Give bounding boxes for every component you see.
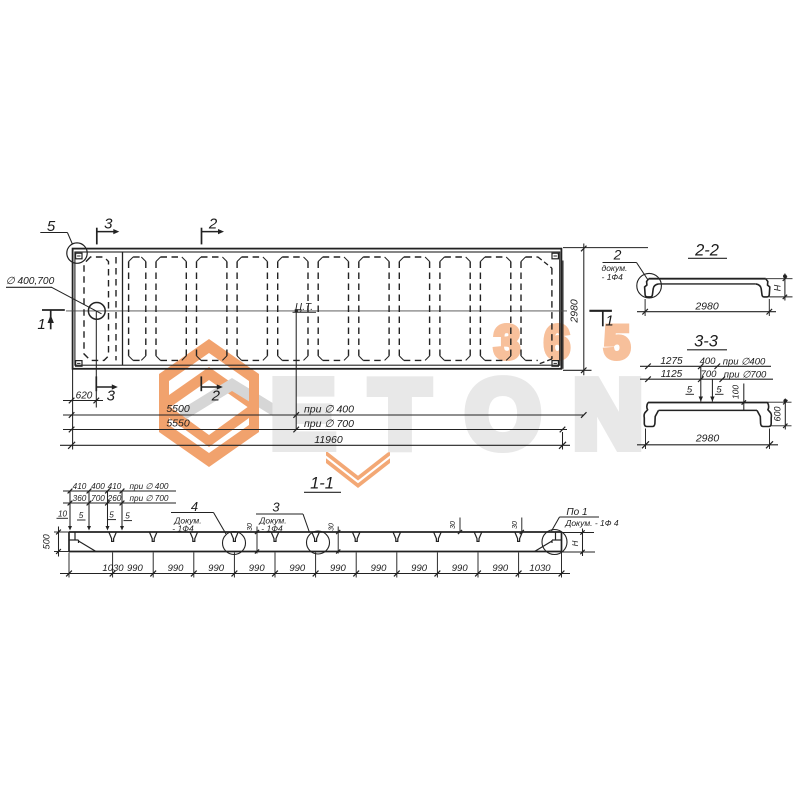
svg-text:30: 30 [328, 523, 335, 531]
svg-text:2: 2 [211, 388, 221, 405]
svg-text:1030: 1030 [102, 563, 124, 574]
svg-text:410: 410 [73, 482, 87, 491]
svg-text:5: 5 [79, 511, 84, 520]
svg-text:990: 990 [371, 563, 388, 574]
svg-text:2: 2 [613, 246, 622, 262]
svg-text:2980: 2980 [694, 300, 719, 312]
svg-text:1275: 1275 [660, 356, 683, 367]
svg-text:5: 5 [125, 512, 130, 521]
svg-text:- 1Ф4: - 1Ф4 [172, 523, 194, 533]
svg-text:2980: 2980 [569, 299, 581, 324]
svg-text:990: 990 [289, 563, 306, 574]
svg-text:30: 30 [512, 521, 519, 529]
svg-text:990: 990 [208, 563, 225, 574]
svg-text:5: 5 [687, 384, 693, 395]
svg-text:По 1: По 1 [566, 507, 587, 518]
svg-text:990: 990 [168, 563, 185, 574]
svg-text:3: 3 [104, 216, 113, 233]
svg-text:360: 360 [73, 494, 87, 503]
svg-text:5500: 5500 [166, 403, 190, 415]
svg-text:30: 30 [450, 521, 457, 529]
svg-text:4: 4 [191, 499, 198, 514]
svg-text:при ∅ 400: при ∅ 400 [130, 482, 169, 491]
svg-text:410: 410 [108, 482, 122, 491]
svg-text:∅ 400,700: ∅ 400,700 [6, 276, 55, 287]
svg-text:990: 990 [452, 563, 469, 574]
svg-text:при ∅400: при ∅400 [723, 356, 766, 367]
svg-text:Н: Н [571, 540, 580, 546]
svg-text:990: 990 [127, 563, 144, 574]
svg-text:600: 600 [773, 406, 783, 421]
svg-text:3: 3 [272, 499, 280, 514]
svg-text:- 1Ф4: - 1Ф4 [602, 272, 624, 282]
svg-text:990: 990 [249, 563, 266, 574]
svg-text:1125: 1125 [661, 369, 683, 380]
svg-text:990: 990 [492, 563, 509, 574]
svg-text:30: 30 [247, 523, 254, 531]
svg-text:при ∅ 700: при ∅ 700 [304, 418, 354, 430]
svg-text:3-3: 3-3 [694, 332, 719, 350]
svg-text:100: 100 [731, 385, 741, 399]
svg-text:Н: Н [772, 284, 782, 291]
svg-text:2980: 2980 [695, 432, 720, 444]
svg-text:11960: 11960 [314, 434, 343, 446]
svg-text:Докум. - 1Ф 4: Докум. - 1Ф 4 [564, 518, 619, 528]
svg-text:500: 500 [42, 534, 52, 549]
svg-text:2: 2 [208, 216, 218, 233]
svg-text:400: 400 [91, 482, 105, 491]
svg-text:при ∅ 700: при ∅ 700 [130, 494, 169, 503]
svg-text:10: 10 [58, 509, 68, 518]
svg-text:5: 5 [716, 384, 722, 395]
svg-text:1: 1 [605, 313, 613, 330]
svg-text:1-1: 1-1 [310, 474, 334, 492]
svg-text:620: 620 [76, 390, 93, 401]
svg-text:2-2: 2-2 [694, 241, 719, 259]
svg-text:400: 400 [700, 356, 717, 367]
svg-text:3: 3 [107, 388, 116, 405]
svg-text:- 1Ф4: - 1Ф4 [261, 524, 283, 534]
svg-text:260: 260 [107, 494, 122, 503]
svg-text:990: 990 [330, 563, 347, 574]
svg-text:при ∅700: при ∅700 [724, 369, 767, 380]
svg-text:990: 990 [411, 563, 428, 574]
svg-text:1: 1 [37, 316, 45, 333]
svg-text:700: 700 [701, 369, 718, 380]
svg-text:5: 5 [109, 511, 114, 520]
svg-text:700: 700 [91, 494, 105, 503]
svg-text:1030: 1030 [529, 563, 551, 574]
svg-text:5550: 5550 [166, 418, 190, 430]
svg-text:при ∅ 400: при ∅ 400 [304, 403, 354, 415]
